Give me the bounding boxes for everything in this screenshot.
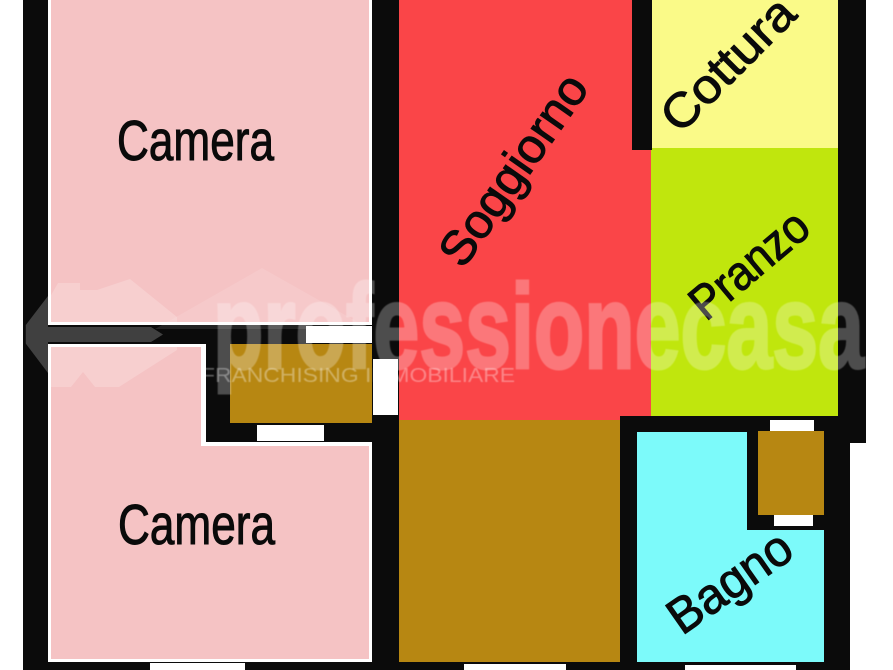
svg-text:Camera: Camera [117,109,274,173]
svg-text:FRANCHISING IMMOBILIARE: FRANCHISING IMMOBILIARE [201,365,515,387]
svg-text:Camera: Camera [118,493,275,557]
